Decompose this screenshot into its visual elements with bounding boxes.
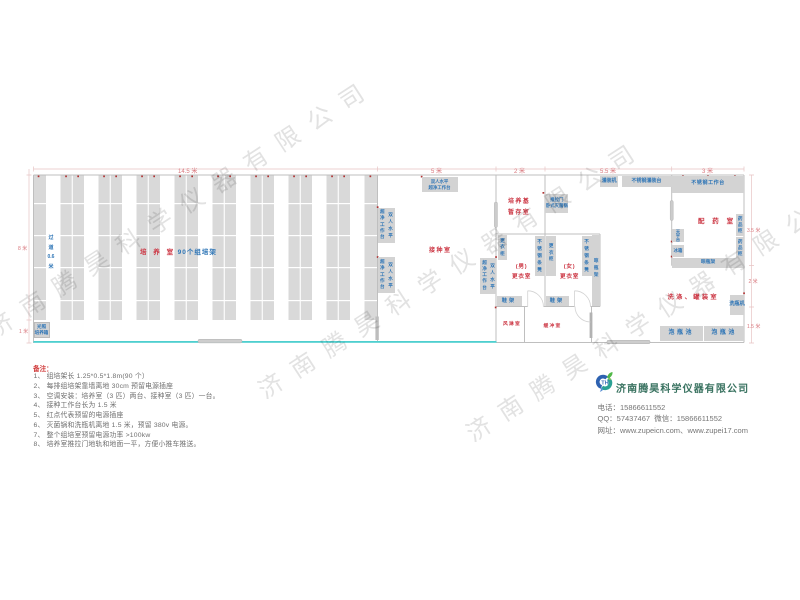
svg-text:TH: TH [601, 381, 608, 387]
